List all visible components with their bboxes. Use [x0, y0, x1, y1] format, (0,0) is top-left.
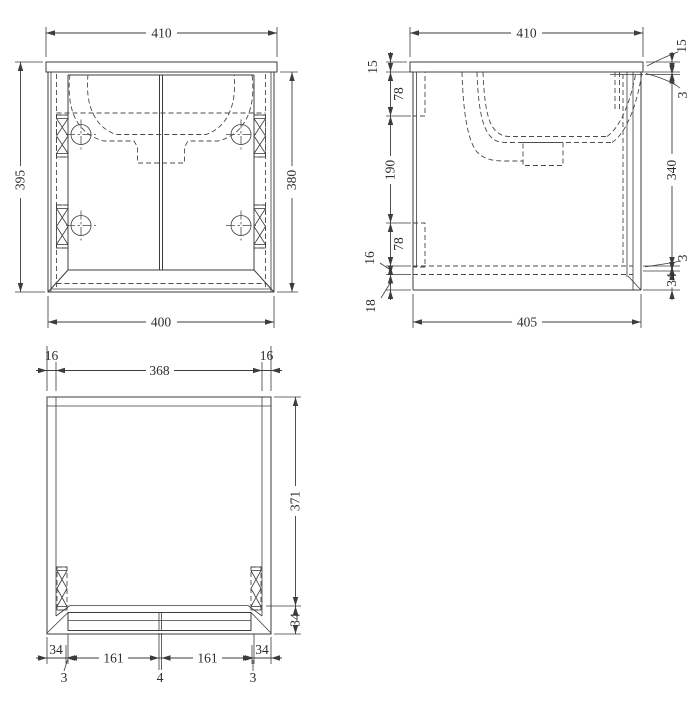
front-view: 410 395 380 400: [13, 26, 300, 330]
front-cabinet-outline: [48, 72, 274, 292]
technical-drawing-page: 410 395 380 400: [0, 0, 700, 700]
front-hidden-side-lines: [57, 74, 266, 290]
front-door-divider: [160, 75, 163, 270]
bottom-top-dimension-chain: 16 368 16: [36, 346, 282, 391]
bottom-bottom-dimension-chain: 34 161 161 34 3 4 3: [36, 633, 282, 685]
side-right-dim-3-bottom: 3: [675, 254, 690, 261]
bottom-dim-368: 368: [149, 363, 170, 378]
bottom-dim-371: 371: [288, 491, 303, 511]
bottom-leader-3-left: 3: [61, 670, 68, 685]
side-dimensions-horizontal: 410 405: [410, 26, 643, 330]
bottom-view: 16 368 16 371 34 34 161 161 34: [36, 346, 303, 685]
front-bottom-dim-label: 400: [151, 315, 172, 330]
bottom-leader-4: 4: [157, 670, 164, 685]
side-left-dim-15: 15: [365, 60, 380, 74]
bottom-dim-16-left: 16: [45, 348, 59, 363]
front-doors: [68, 75, 254, 270]
bottom-plinth-rail: [68, 613, 251, 631]
side-top-dim-label: 410: [516, 26, 537, 41]
front-hinge-plate-top-left: [57, 115, 69, 157]
side-right-dimension-chain: 15 3 340 3 34: [643, 39, 690, 300]
side-right-dim-15: 15: [674, 39, 689, 53]
side-bottom-dim-label: 405: [517, 315, 538, 330]
technical-drawing: 410 395 380 400: [0, 0, 700, 700]
front-right-dim-label: 380: [284, 170, 299, 191]
bottom-hinge-plate-left: [57, 567, 67, 610]
side-right-dim-3-top: 3: [675, 91, 690, 98]
side-left-dim-190: 190: [383, 160, 398, 181]
front-hinge-plate-bottom-left: [57, 205, 69, 248]
side-basin-drain: [523, 143, 563, 166]
side-left-dim-16: 16: [362, 251, 377, 265]
side-left-dim-18: 18: [363, 299, 378, 313]
front-basin-outer: [69, 75, 253, 164]
bottom-dim-34-right: 34: [255, 642, 269, 657]
bottom-leader-3-right: 3: [250, 670, 257, 685]
bottom-hinge-plate-right: [251, 567, 261, 610]
side-left-dim-78-top: 78: [391, 87, 406, 101]
side-left-dimension-chain: 15 78 190 78 16 18: [362, 52, 411, 313]
front-countertop: [46, 62, 277, 72]
front-hinge-plate-top-right: [254, 115, 266, 157]
bottom-outline: [47, 397, 271, 634]
bottom-dim-34-left: 34: [49, 642, 63, 657]
bottom-dim-161-left: 161: [103, 651, 123, 666]
side-basin-profile: [462, 72, 642, 166]
bottom-dim-161-right: 161: [197, 651, 217, 666]
side-right-dim-340: 340: [664, 160, 679, 181]
side-countertop: [410, 62, 643, 72]
side-view: 410 405 15 78 190 78 16 18: [362, 26, 690, 330]
front-hinge-plate-bottom-right: [254, 205, 266, 248]
side-hinge-plates: [413, 72, 425, 267]
front-top-dim-label: 410: [151, 26, 172, 41]
front-basin-inner: [87, 75, 234, 135]
side-left-dim-78-bottom: 78: [391, 237, 406, 251]
bottom-dim-16-right: 16: [260, 348, 274, 363]
bottom-dim-34-right-chain: 34: [288, 613, 303, 627]
side-right-dim-34: 34: [664, 273, 679, 287]
front-left-dim-label: 395: [13, 170, 28, 191]
